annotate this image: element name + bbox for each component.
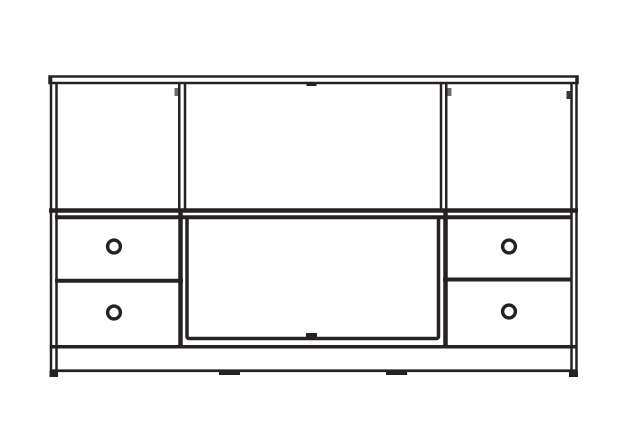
foot-left-corner	[50, 371, 59, 377]
center-panel-front	[187, 218, 439, 339]
foot-right-corner	[569, 371, 578, 377]
cabinet-line-drawing	[0, 0, 633, 439]
right-drawer-top-knob	[503, 240, 516, 253]
left-drawer-bottom-knob	[108, 306, 121, 319]
center-panel-latch	[306, 333, 317, 337]
right-drawer-bottom-knob	[503, 305, 516, 318]
plinth-base	[50, 347, 579, 377]
drawing-canvas	[0, 0, 633, 439]
hinge-mark-right-compartment-left	[448, 88, 452, 96]
foot-glide-right	[386, 370, 407, 375]
hinge-marks	[175, 88, 572, 99]
cabinet-top	[50, 77, 578, 87]
hinge-mark-right-compartment-right	[567, 91, 572, 99]
top-band	[50, 77, 578, 84]
top-edge-tick	[307, 83, 317, 87]
center-panel-door	[187, 218, 439, 339]
top-compartment-dividers	[179, 84, 446, 210]
foot-glide-left	[219, 370, 240, 375]
hinge-mark-left-compartment	[175, 88, 179, 96]
left-drawer-top-knob	[108, 240, 121, 253]
